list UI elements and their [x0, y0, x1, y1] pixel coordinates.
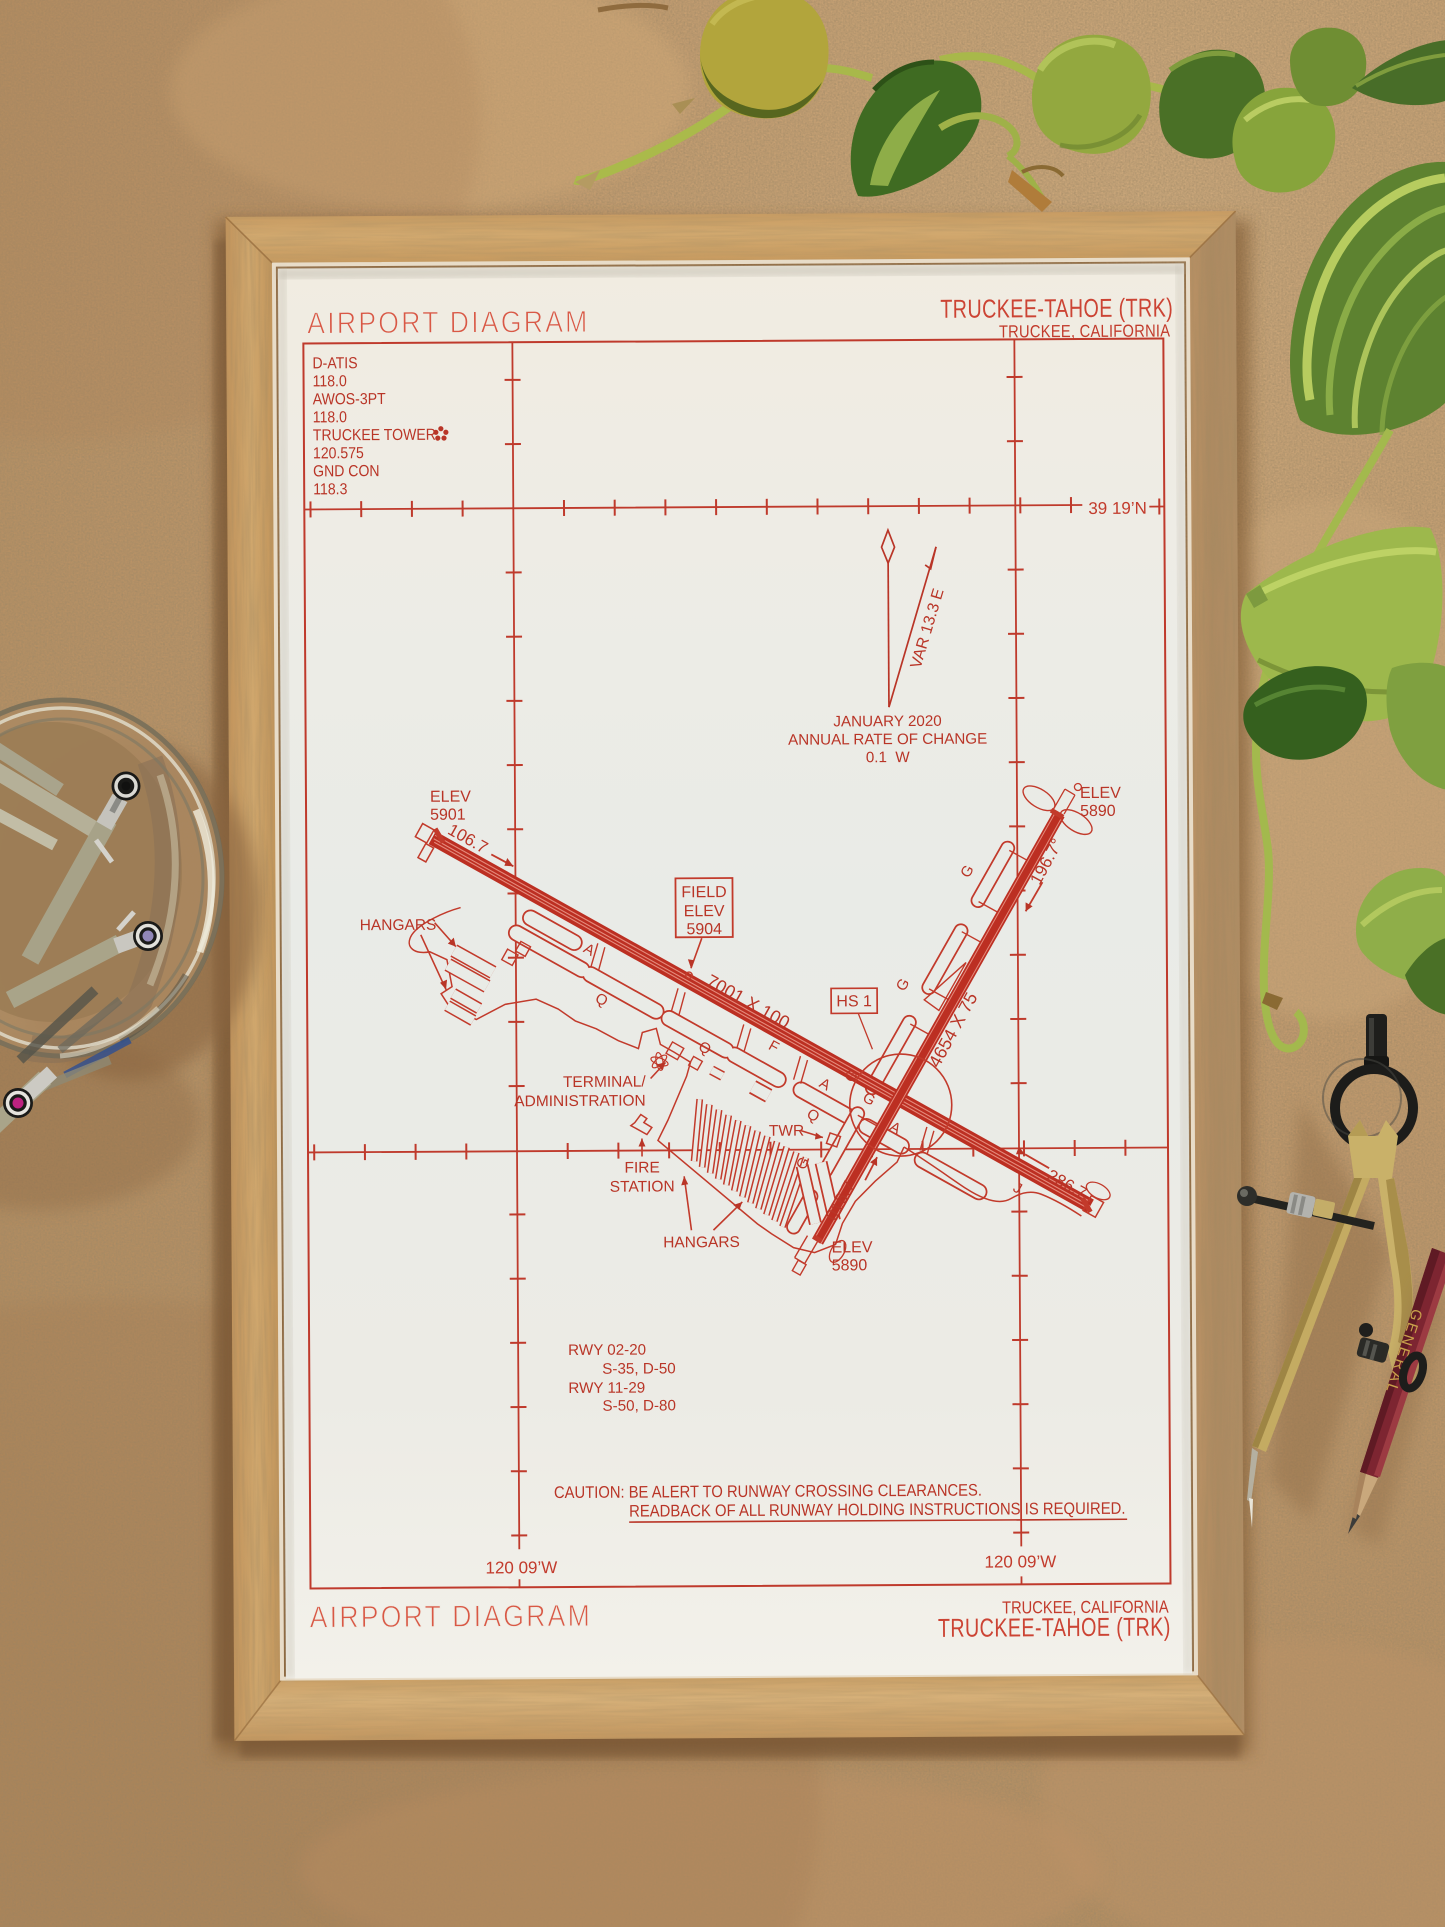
svg-text:HS 1: HS 1 — [836, 993, 872, 1010]
svg-text:5890: 5890 — [832, 1257, 868, 1274]
svg-text:RWY 02-20: RWY 02-20 — [568, 1342, 646, 1359]
svg-text:120.575: 120.575 — [313, 444, 364, 462]
svg-text:FIELD: FIELD — [681, 884, 726, 901]
svg-text:120 09’W: 120 09’W — [485, 1558, 557, 1577]
svg-text:AIRPORT DIAGRAM: AIRPORT DIAGRAM — [310, 1599, 592, 1635]
svg-text:TRUCKEE TOWER: TRUCKEE TOWER — [313, 426, 436, 445]
svg-text:D-ATIS: D-ATIS — [312, 354, 357, 372]
svg-text:39 19’N: 39 19’N — [1088, 499, 1147, 518]
svg-text:5890: 5890 — [1080, 803, 1116, 820]
svg-text:ELEV: ELEV — [684, 903, 725, 920]
svg-text:JANUARY 2020: JANUARY 2020 — [833, 713, 941, 731]
svg-text:HANGARS: HANGARS — [360, 917, 437, 934]
svg-text:0.1 W: 0.1 W — [866, 749, 911, 766]
svg-text:ELEV: ELEV — [1080, 785, 1121, 802]
svg-text:TWR: TWR — [769, 1123, 804, 1140]
svg-text:118.3: 118.3 — [313, 480, 347, 498]
svg-text:ADMINISTRATION: ADMINISTRATION — [514, 1093, 646, 1111]
svg-text:AIRPORT DIAGRAM: AIRPORT DIAGRAM — [307, 305, 589, 341]
svg-text:S-35, D-50: S-35, D-50 — [602, 1360, 676, 1377]
svg-text:S-50, D-80: S-50, D-80 — [602, 1397, 676, 1414]
svg-text:ELEV: ELEV — [832, 1239, 873, 1256]
svg-text:5904: 5904 — [686, 921, 722, 938]
svg-text:CAUTION: BE ALERT TO RUNWAY CR: CAUTION: BE ALERT TO RUNWAY CROSSING CLE… — [554, 1482, 982, 1503]
svg-text:RWY 11-29: RWY 11-29 — [568, 1380, 645, 1397]
svg-text:STATION: STATION — [610, 1178, 675, 1195]
svg-text:READBACK OF ALL RUNWAY HOLDING: READBACK OF ALL RUNWAY HOLDING INSTRUCTI… — [629, 1500, 1125, 1521]
svg-text:118.0: 118.0 — [313, 372, 347, 390]
svg-text:TRUCKEE-TAHOE (TRK): TRUCKEE-TAHOE (TRK) — [938, 1612, 1171, 1643]
svg-text:TRUCKEE-TAHOE (TRK): TRUCKEE-TAHOE (TRK) — [940, 293, 1173, 324]
svg-text:118.0: 118.0 — [313, 408, 347, 426]
svg-text:ELEV: ELEV — [430, 789, 471, 806]
svg-text:FIRE: FIRE — [624, 1159, 659, 1176]
svg-text:ANNUAL RATE OF CHANGE: ANNUAL RATE OF CHANGE — [788, 731, 987, 749]
svg-text:AWOS-3PT: AWOS-3PT — [313, 390, 386, 408]
svg-text:5901: 5901 — [430, 807, 466, 824]
svg-text:TRUCKEE, CALIFORNIA: TRUCKEE, CALIFORNIA — [999, 321, 1170, 341]
svg-text:HANGARS: HANGARS — [663, 1234, 740, 1251]
svg-text:GND CON: GND CON — [313, 462, 380, 480]
svg-text:120 09’W: 120 09’W — [984, 1552, 1056, 1571]
svg-text:TERMINAL/: TERMINAL/ — [563, 1074, 646, 1091]
